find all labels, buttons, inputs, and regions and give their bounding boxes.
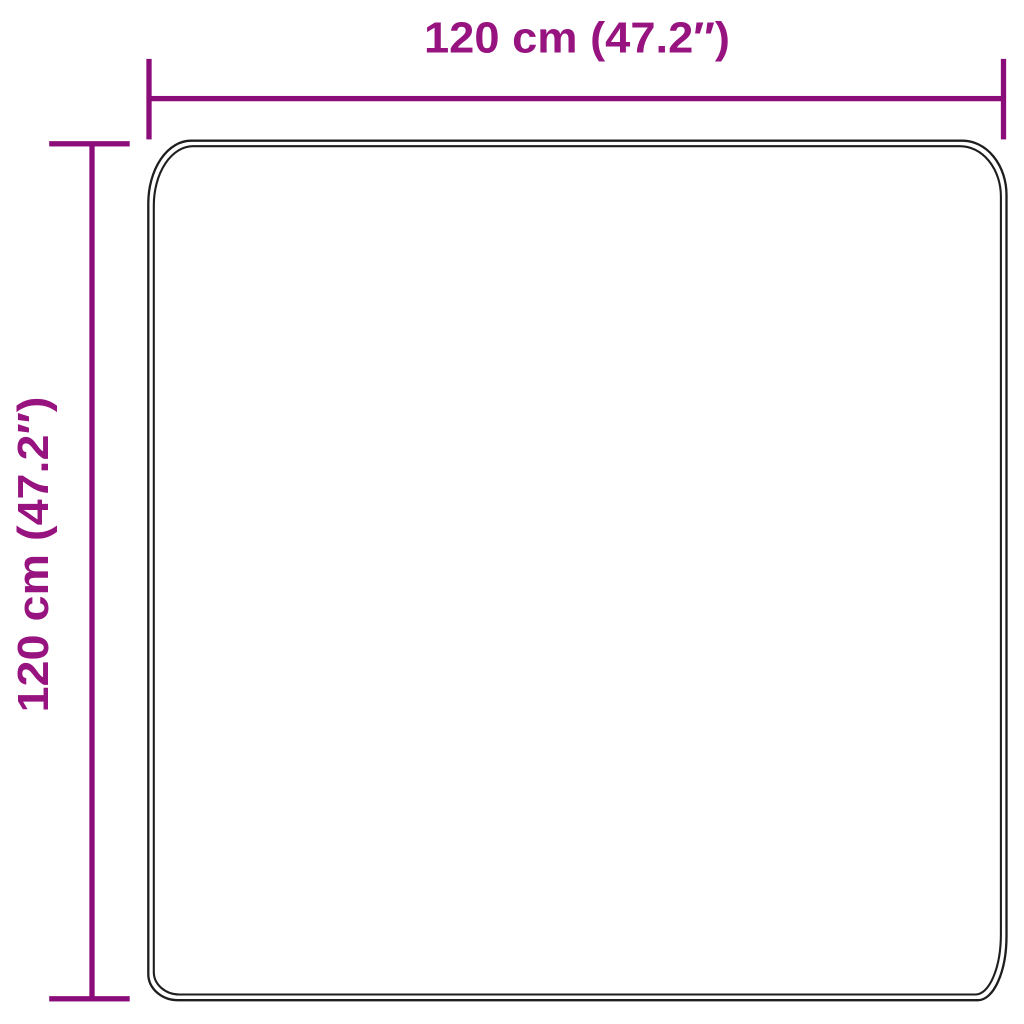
svg-text:120 cm (47.2″): 120 cm (47.2″)	[424, 14, 730, 63]
svg-text:120 cm (47.2″): 120 cm (47.2″)	[9, 397, 58, 713]
